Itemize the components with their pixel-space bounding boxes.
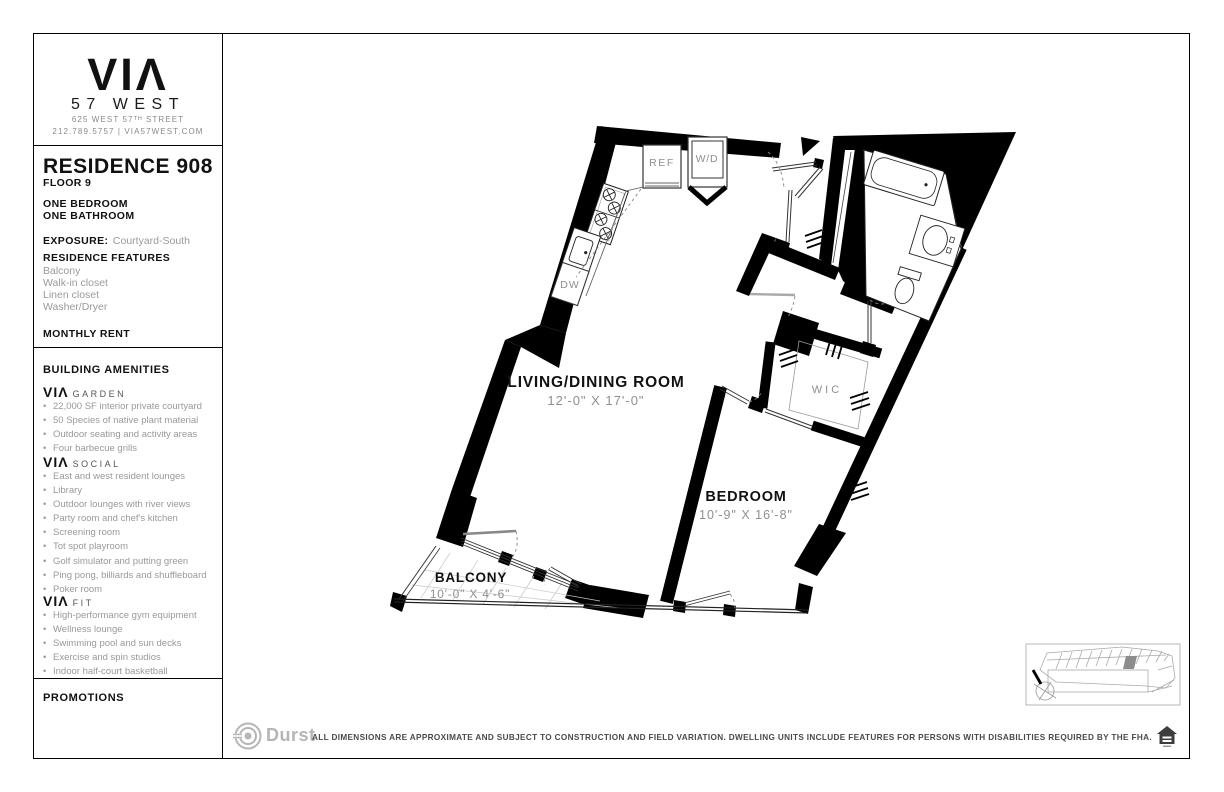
disclaimer-text: ALL DIMENSIONS ARE APPROXIMATE AND SUBJE…: [312, 733, 1152, 742]
room-dims: 10'-0" X 4'-6": [430, 587, 510, 601]
ref-label: REF: [649, 157, 675, 169]
hatch-wic-left: [779, 349, 798, 367]
floorplan-sheet: VIΛ 57 WEST 625 WEST 57ᵀᴴ STREET 212.789…: [0, 0, 1224, 792]
wic-label: WIC: [812, 384, 842, 396]
room-dims: 12'-0" X 17'-0": [547, 393, 644, 408]
hatch-wic-right: [850, 392, 870, 410]
entry-door-marker: [801, 137, 820, 156]
equal-housing-icon: [1157, 726, 1177, 747]
plan-labels: LIVING/DINING ROOM 12'-0" X 17'-0" BEDRO…: [430, 153, 842, 601]
wd-chevron: [689, 187, 726, 203]
dw-label: DW: [560, 279, 580, 291]
room-label: LIVING/DINING ROOM: [507, 374, 684, 391]
floor-plan: LIVING/DINING ROOM 12'-0" X 17'-0" BEDRO…: [0, 0, 1224, 792]
key-plan: [1026, 644, 1180, 705]
durst-logo: [233, 724, 261, 749]
room-label: BALCONY: [435, 570, 507, 585]
wd-label: W/D: [696, 153, 719, 165]
room-dims: 10'-9" X 16'-8": [699, 508, 793, 522]
durst-wordmark: Durst: [266, 725, 316, 746]
room-label: BEDROOM: [705, 489, 786, 505]
